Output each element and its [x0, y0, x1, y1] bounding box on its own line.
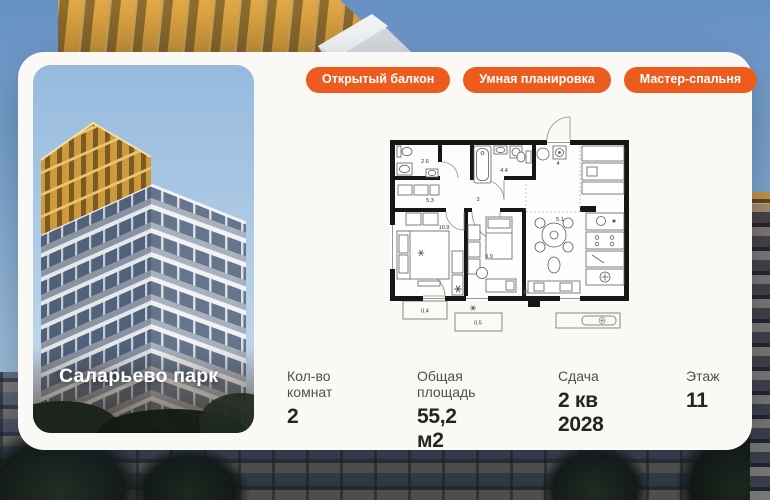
stat-floor: Этаж 11: [686, 368, 719, 413]
listing-card[interactable]: Саларьево парк Открытый балкон Умная пла…: [18, 52, 752, 450]
room-area-label: 5.1: [556, 217, 564, 223]
floor-plan: 2.64.445.3310.95.19.90.40.5: [388, 113, 640, 341]
stat-value: 11: [686, 389, 719, 413]
room-area-label: 0.5: [474, 321, 482, 327]
room-area-label: 0.4: [421, 309, 429, 315]
feature-badges: Открытый балкон Умная планировка Мастер-…: [306, 67, 757, 93]
room-area-label: 10.9: [439, 225, 450, 231]
badge-master-bedroom[interactable]: Мастер-спальня: [624, 67, 757, 93]
stat-value: 55,2 м2: [417, 405, 475, 453]
stat-label: Сдача: [558, 368, 604, 384]
stat-total-area: Общая площадь 55,2 м2: [417, 368, 475, 453]
room-area-label: 2.6: [421, 159, 429, 165]
room-area-label: 3: [476, 197, 479, 203]
stat-label: Общая площадь: [417, 368, 475, 400]
room-area-label: 5.3: [426, 198, 434, 204]
badge-smart-layout[interactable]: Умная планировка: [463, 67, 611, 93]
project-name: Саларьево парк: [59, 365, 218, 388]
balconies: [403, 301, 620, 331]
background-right-building: [750, 192, 770, 500]
project-photo: Саларьево парк: [33, 65, 254, 433]
room-area-label: 4.4: [500, 168, 508, 174]
stat-label: Этаж: [686, 368, 719, 384]
room-area-label: 4: [556, 161, 559, 167]
room-area-label: 9.9: [485, 254, 493, 260]
stat-value: 2 кв 2028: [558, 389, 604, 437]
stat-rooms: Кол-во комнат 2: [287, 368, 332, 429]
badge-open-balcony[interactable]: Открытый балкон: [306, 67, 450, 93]
background-scene: Саларьево парк Открытый балкон Умная пла…: [0, 0, 770, 500]
stat-value: 2: [287, 405, 332, 429]
stat-completion: Сдача 2 кв 2028: [558, 368, 604, 437]
stat-label: Кол-во комнат: [287, 368, 332, 400]
